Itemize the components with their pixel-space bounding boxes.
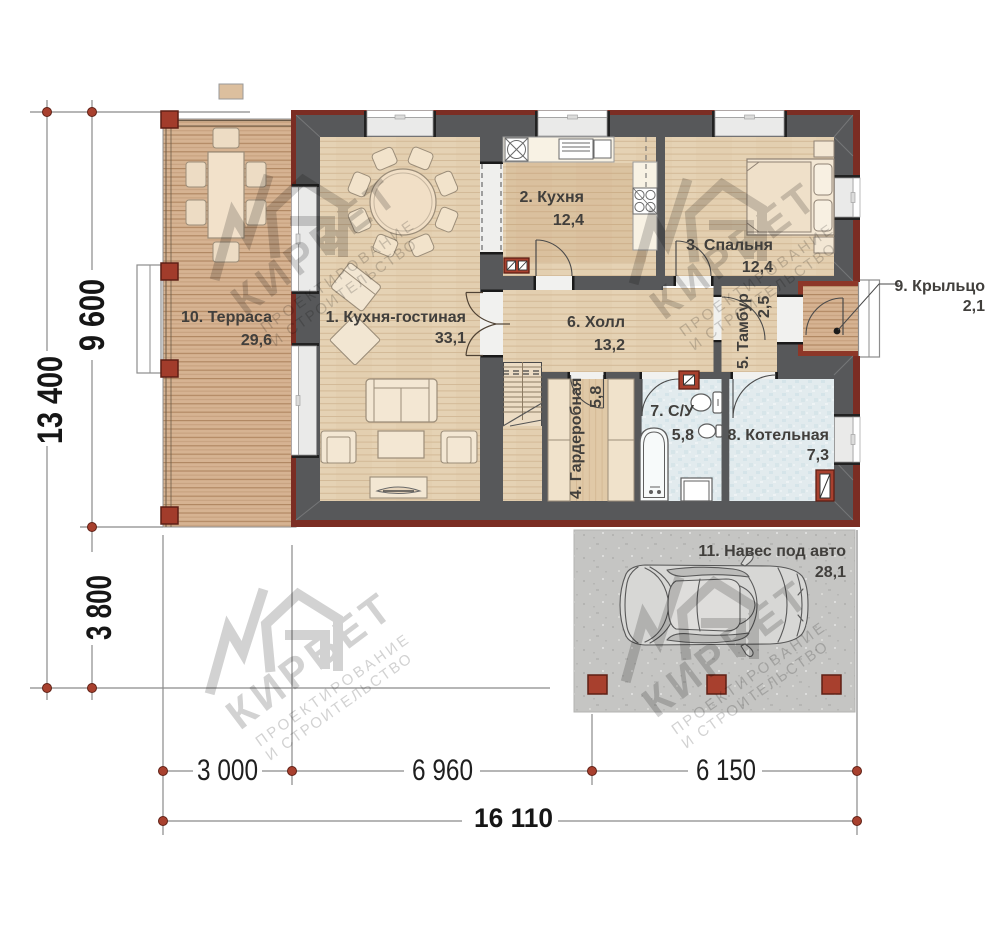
svg-text:5. Тамбур: 5. Тамбур [735, 293, 752, 369]
svg-text:12,4: 12,4 [553, 212, 584, 229]
svg-text:3. Спальня: 3. Спальня [686, 237, 773, 254]
svg-text:13 400: 13 400 [31, 356, 70, 444]
svg-text:33,1: 33,1 [435, 330, 466, 347]
svg-text:28,1: 28,1 [815, 564, 846, 581]
svg-text:6 150: 6 150 [696, 754, 756, 787]
svg-text:5,8: 5,8 [588, 386, 605, 408]
svg-text:7,3: 7,3 [807, 447, 829, 464]
svg-text:12,4: 12,4 [742, 259, 773, 276]
svg-text:9 600: 9 600 [73, 279, 112, 351]
svg-text:6. Холл: 6. Холл [567, 314, 625, 331]
svg-text:2,1: 2,1 [963, 298, 985, 315]
svg-text:6 960: 6 960 [412, 754, 473, 787]
svg-text:4. Гардеробная: 4. Гардеробная [568, 378, 585, 499]
svg-text:13,2: 13,2 [594, 337, 625, 354]
svg-text:3 000: 3 000 [197, 754, 258, 787]
svg-text:7. С/У: 7. С/У [650, 403, 695, 420]
svg-text:2,5: 2,5 [756, 296, 773, 318]
svg-text:2. Кухня: 2. Кухня [519, 189, 584, 206]
svg-text:8. Котельная: 8. Котельная [727, 427, 829, 444]
svg-text:11. Навес под авто: 11. Навес под авто [698, 543, 846, 560]
svg-text:16 110: 16 110 [474, 803, 553, 833]
svg-text:29,6: 29,6 [241, 332, 272, 349]
svg-text:10. Терраса: 10. Терраса [181, 309, 272, 326]
svg-text:5,8: 5,8 [672, 427, 694, 444]
svg-text:1. Кухня-гостиная: 1. Кухня-гостиная [326, 309, 466, 326]
svg-text:9. Крыльцо: 9. Крыльцо [894, 278, 985, 295]
svg-text:3 800: 3 800 [80, 575, 119, 640]
